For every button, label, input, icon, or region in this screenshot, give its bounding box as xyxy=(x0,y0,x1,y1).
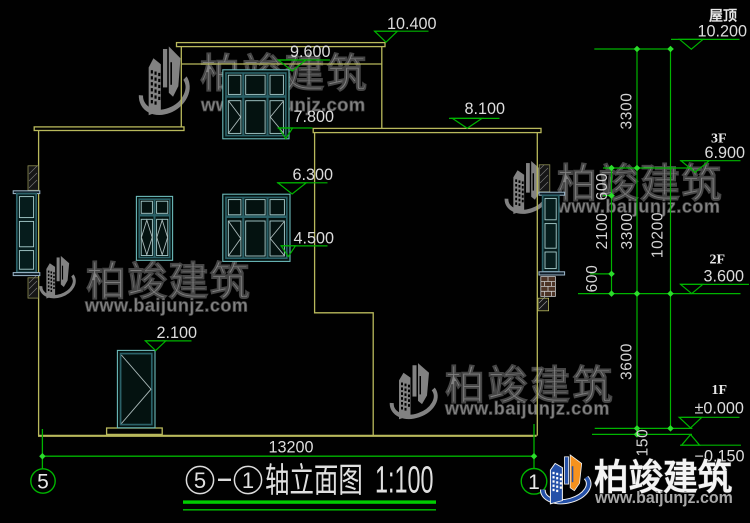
svg-text:±0.000: ±0.000 xyxy=(695,400,744,418)
svg-text:轴立面图: 轴立面图 xyxy=(265,462,363,500)
svg-text:www.baijunjz.com: www.baijunjz.com xyxy=(444,399,610,419)
svg-text:5: 5 xyxy=(37,471,49,494)
svg-text:2.100: 2.100 xyxy=(157,324,198,342)
svg-text:3300: 3300 xyxy=(619,93,636,130)
svg-text:3600: 3600 xyxy=(619,343,636,380)
svg-text:600: 600 xyxy=(584,265,601,293)
svg-text:www.baijunjz.com: www.baijunjz.com xyxy=(594,489,733,508)
svg-text:6.300: 6.300 xyxy=(293,166,334,184)
svg-text:1:100: 1:100 xyxy=(375,458,433,501)
svg-text:10.200: 10.200 xyxy=(698,23,748,41)
svg-text:1: 1 xyxy=(528,471,540,494)
svg-text:13200: 13200 xyxy=(269,439,314,457)
svg-text:4.500: 4.500 xyxy=(294,230,335,248)
svg-text:1: 1 xyxy=(242,468,254,493)
svg-text:10.400: 10.400 xyxy=(387,15,437,33)
svg-text:5: 5 xyxy=(194,468,206,493)
svg-text:2F: 2F xyxy=(710,253,726,268)
svg-text:3.600: 3.600 xyxy=(704,268,745,286)
svg-text:9.600: 9.600 xyxy=(290,43,331,61)
svg-text:1F: 1F xyxy=(712,383,728,398)
svg-text:2100: 2100 xyxy=(594,213,611,250)
svg-text:7.800: 7.800 xyxy=(294,108,335,126)
svg-text:www.baijunjz.com: www.baijunjz.com xyxy=(84,296,248,316)
svg-text:600: 600 xyxy=(594,173,611,201)
svg-text:10200: 10200 xyxy=(650,212,667,258)
svg-text:150: 150 xyxy=(635,429,652,457)
svg-text:8.100: 8.100 xyxy=(465,100,506,118)
svg-text:6.900: 6.900 xyxy=(705,144,746,162)
svg-text:www.baijunjz.com: www.baijunjz.com xyxy=(556,197,720,217)
svg-text:3300: 3300 xyxy=(619,213,636,250)
